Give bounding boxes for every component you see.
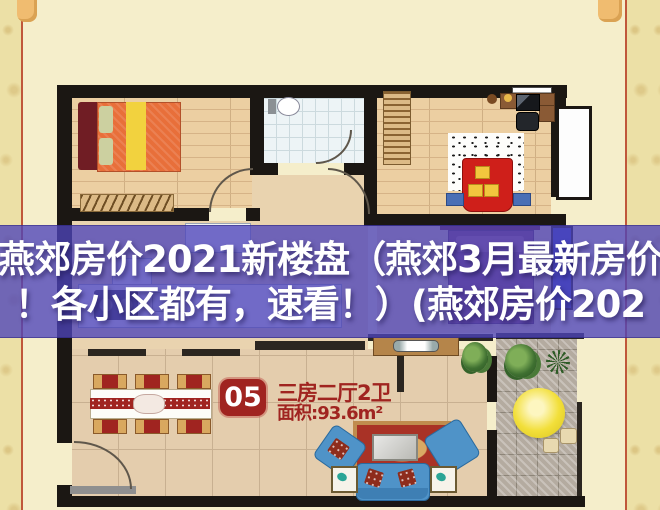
pillow-icon <box>99 138 113 165</box>
stool-icon <box>543 438 559 453</box>
bowl-icon <box>487 94 497 104</box>
futon-pillow-icon <box>475 166 490 179</box>
centerpiece-icon <box>133 394 165 414</box>
parasol-icon <box>513 388 565 438</box>
coffee-table-icon <box>372 434 418 461</box>
plant-icon <box>462 342 488 372</box>
sofa-back-icon <box>356 488 428 499</box>
bed-headboard-icon <box>78 102 97 170</box>
window-sill <box>88 349 146 356</box>
unit-number: 05 <box>224 382 262 413</box>
wall-stub <box>397 352 404 392</box>
floor-mat-icon <box>513 193 531 206</box>
floor-mat-icon <box>446 193 464 206</box>
dining-chair-icon <box>177 419 211 434</box>
futon-pillow-icon <box>484 184 499 197</box>
wardrobe-icon <box>383 91 411 165</box>
tv-icon <box>393 340 439 352</box>
pillow-icon <box>99 106 113 133</box>
dining-chair-icon <box>135 374 169 389</box>
balcony-wall <box>577 402 582 496</box>
wall <box>250 163 278 175</box>
toilet-icon <box>277 97 300 116</box>
dining-chair-icon <box>177 374 211 389</box>
desk-item-icon <box>504 94 512 102</box>
desk-return-icon <box>539 105 555 122</box>
radiator-rack-icon <box>80 194 174 212</box>
overlay-title-line1: 燕郊房价2021新楼盘（燕郊3月最新房价 <box>0 237 660 282</box>
computer-icon <box>516 94 540 111</box>
futon-pillow-icon <box>468 184 483 197</box>
dining-chair-icon <box>93 419 127 434</box>
overlay-title-line2: ！各小区都有，速看！）(燕郊房价202 <box>15 282 645 327</box>
stool-icon <box>560 428 577 444</box>
plant-icon <box>546 350 570 374</box>
wall <box>57 496 585 507</box>
article-thumbnail: 05 三房二厅2卫 面积:93.6m² 燕郊房价2021新楼盘（燕郊3月最新房价… <box>0 0 660 510</box>
wall <box>487 356 497 402</box>
office-chair-icon <box>516 112 539 131</box>
plant-icon <box>505 344 537 378</box>
wall <box>255 341 365 350</box>
bed-stripe-icon <box>126 102 146 170</box>
window-sill <box>182 349 240 356</box>
unit-area-label: 面积:93.6m² <box>277 399 382 425</box>
wall <box>487 430 497 496</box>
dining-chair-icon <box>135 419 169 434</box>
toilet-tank-icon <box>268 99 276 114</box>
dining-chair-icon <box>93 374 127 389</box>
title-overlay-band: 燕郊房价2021新楼盘（燕郊3月最新房价 ！各小区都有，速看！）(燕郊房价202 <box>0 225 660 338</box>
window-panel-icon <box>556 106 592 200</box>
unit-badge: 05 <box>220 379 266 416</box>
